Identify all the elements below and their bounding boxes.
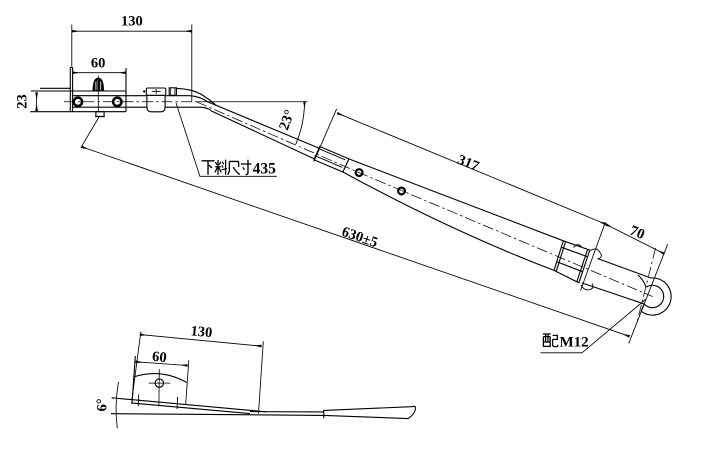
svg-text:435: 435 xyxy=(253,161,277,178)
svg-text:130: 130 xyxy=(190,323,213,341)
svg-text:60: 60 xyxy=(91,56,106,72)
svg-text:130: 130 xyxy=(121,14,143,30)
svg-text:60: 60 xyxy=(151,349,167,366)
svg-text:M12: M12 xyxy=(560,335,589,351)
svg-text:23: 23 xyxy=(15,94,31,109)
svg-text:6°: 6° xyxy=(95,398,111,411)
